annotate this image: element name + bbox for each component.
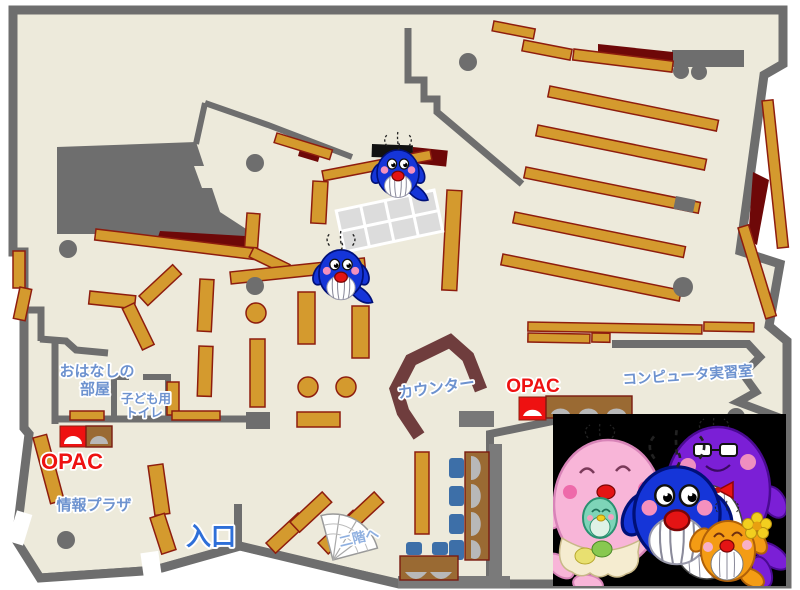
label-opac-left: OPAC <box>41 449 103 474</box>
bookshelf <box>352 306 369 358</box>
label-ohanashi-room: おはなしの <box>59 363 134 380</box>
library-floor-map: おはなしの 部屋 子ども用 トイレ OPAC 情報プラザ 入口 二階へ カウンタ… <box>0 0 800 590</box>
label-opac-right: OPAC <box>506 376 560 397</box>
bookshelf <box>298 292 315 344</box>
bookshelf <box>415 452 429 534</box>
bookshelf <box>311 181 328 224</box>
bookshelf <box>245 213 260 248</box>
label-ohanashi-room: 部屋 <box>80 380 110 398</box>
bookshelf <box>250 339 265 407</box>
label-kids-toilet: トイレ <box>125 406 163 420</box>
bookshelf <box>592 333 610 342</box>
bookshelf <box>197 279 214 332</box>
bookshelf <box>528 333 590 343</box>
label-info-plaza: 情報プラザ <box>56 496 131 514</box>
mascot-family-panel <box>537 414 793 590</box>
label-kids-toilet: 子ども用 <box>121 392 171 406</box>
opac-terminal-icon <box>60 426 112 447</box>
bookshelf <box>704 322 754 332</box>
floor-map-canvas: おはなしの 部屋 子ども用 トイレ OPAC 情報プラザ 入口 二階へ カウンタ… <box>0 0 800 590</box>
bookshelf <box>197 346 213 396</box>
reading-desk <box>449 452 489 560</box>
bookshelf <box>13 251 25 288</box>
bookshelf <box>762 100 788 248</box>
bookshelf <box>297 412 340 427</box>
entrance-door-gap <box>140 551 161 578</box>
label-entrance: 入口 <box>186 523 236 551</box>
bookshelf <box>70 411 104 420</box>
bookshelf <box>172 411 220 420</box>
